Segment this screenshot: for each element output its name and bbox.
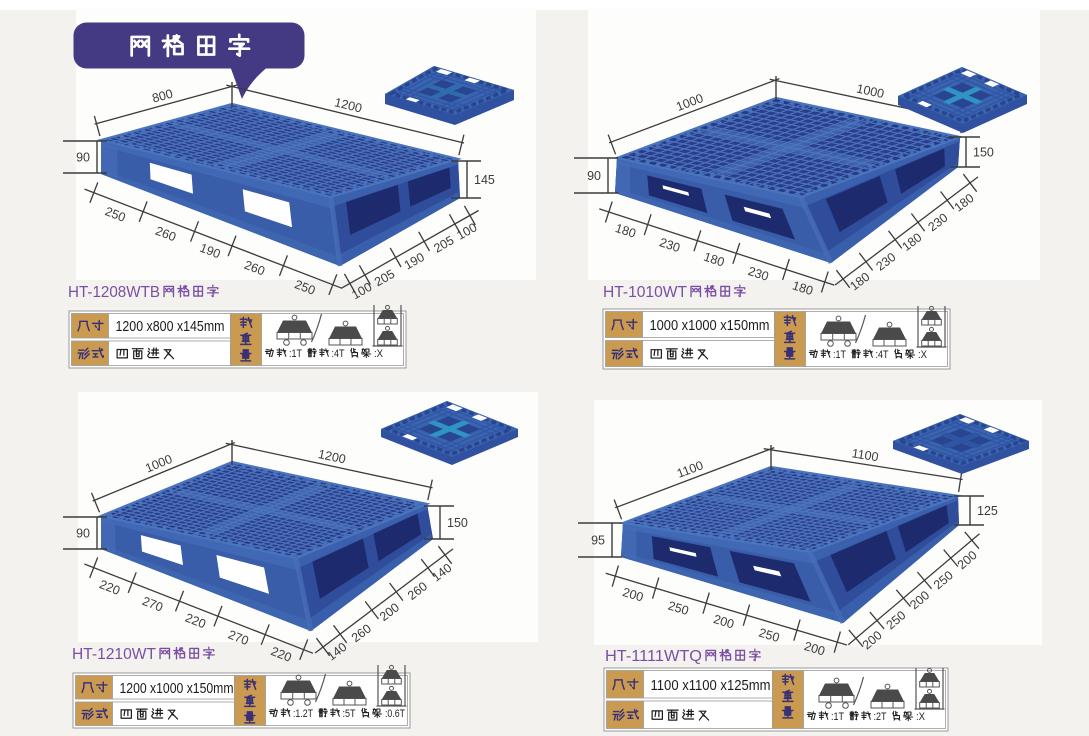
svg-text::X: :X (918, 349, 928, 361)
svg-text::2T: :2T (874, 711, 887, 723)
svg-text::4T: :4T (332, 348, 345, 360)
svg-text::0.6T: :0.6T (385, 708, 405, 720)
svg-text::X: :X (916, 711, 926, 723)
svg-text::4T: :4T (876, 349, 889, 361)
svg-text::1.2T: :1.2T (293, 708, 313, 720)
svg-text:145: 145 (474, 173, 495, 187)
svg-text:90: 90 (76, 151, 90, 165)
svg-text:1200 x1000 x150mm: 1200 x1000 x150mm (120, 681, 234, 697)
svg-text:90: 90 (76, 527, 90, 541)
svg-text:HT-1111WTQ: HT-1111WTQ (605, 648, 702, 665)
svg-text:150: 150 (973, 146, 994, 160)
svg-text:95: 95 (591, 534, 605, 548)
svg-text:1100 x1100 x125mm: 1100 x1100 x125mm (651, 678, 771, 694)
svg-text:125: 125 (977, 504, 998, 518)
svg-text:150: 150 (447, 516, 468, 530)
svg-text::1T: :1T (833, 349, 846, 361)
svg-text:HT-1210WT: HT-1210WT (72, 646, 156, 663)
svg-text:90: 90 (587, 169, 601, 183)
svg-text::1T: :1T (831, 711, 844, 723)
svg-text::X: :X (374, 348, 384, 360)
svg-text:1000 x1000 x150mm: 1000 x1000 x150mm (650, 318, 770, 334)
svg-text:HT-1010WT: HT-1010WT (603, 284, 687, 301)
svg-text:1200 x800 x145mm: 1200 x800 x145mm (116, 319, 225, 335)
svg-text::1T: :1T (289, 348, 302, 360)
svg-text::5T: :5T (343, 708, 356, 720)
svg-text:HT-1208WTB: HT-1208WTB (68, 284, 160, 301)
